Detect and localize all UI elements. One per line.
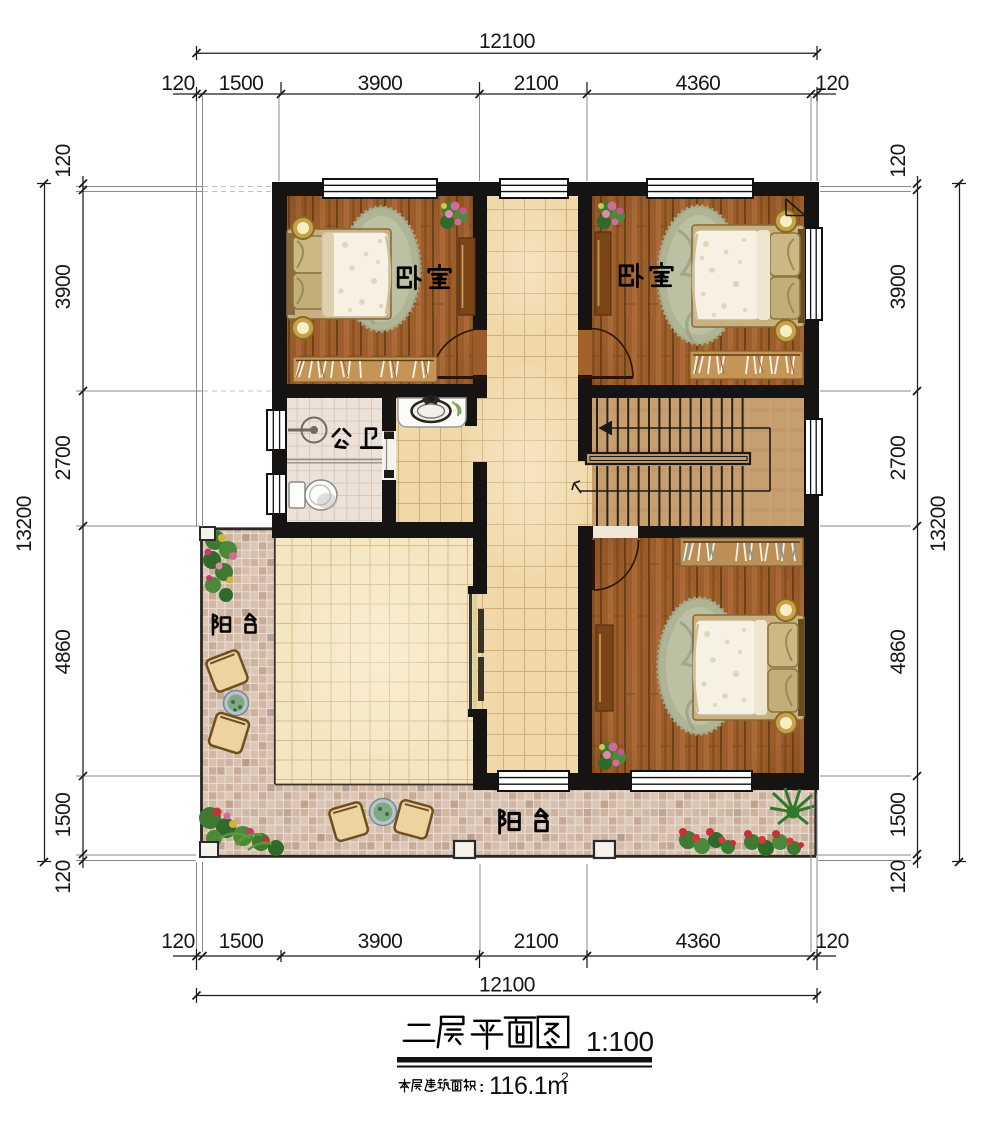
svg-text:4860: 4860: [887, 630, 910, 675]
svg-text:1500: 1500: [52, 793, 75, 838]
svg-text:1500: 1500: [219, 72, 264, 95]
svg-text:3900: 3900: [52, 265, 75, 310]
svg-text:120: 120: [52, 144, 75, 178]
svg-text:1500: 1500: [219, 930, 264, 953]
svg-text:120: 120: [161, 72, 195, 95]
svg-text:12100: 12100: [479, 974, 535, 997]
svg-text:3900: 3900: [358, 72, 403, 95]
svg-text:13200: 13200: [13, 496, 36, 552]
svg-text:120: 120: [815, 72, 849, 95]
svg-text:3900: 3900: [887, 265, 910, 310]
svg-text:116.1m: 116.1m: [489, 1072, 568, 1100]
svg-text:2100: 2100: [514, 72, 559, 95]
svg-text:120: 120: [161, 930, 195, 953]
svg-text:2700: 2700: [887, 436, 910, 481]
svg-text:2100: 2100: [514, 930, 559, 953]
svg-text:4360: 4360: [676, 930, 721, 953]
svg-text:4360: 4360: [676, 72, 721, 95]
svg-text:1:100: 1:100: [586, 1026, 654, 1057]
svg-text:3900: 3900: [358, 930, 403, 953]
svg-text:120: 120: [887, 860, 910, 894]
svg-text:2: 2: [561, 1069, 569, 1085]
svg-text:2700: 2700: [52, 436, 75, 481]
svg-text:120: 120: [815, 930, 849, 953]
svg-text:120: 120: [887, 144, 910, 178]
svg-text::: :: [479, 1079, 484, 1096]
svg-text:120: 120: [52, 860, 75, 894]
svg-text:12100: 12100: [479, 30, 535, 53]
svg-text:13200: 13200: [927, 496, 950, 552]
svg-text:1500: 1500: [887, 793, 910, 838]
svg-text:4860: 4860: [52, 630, 75, 675]
